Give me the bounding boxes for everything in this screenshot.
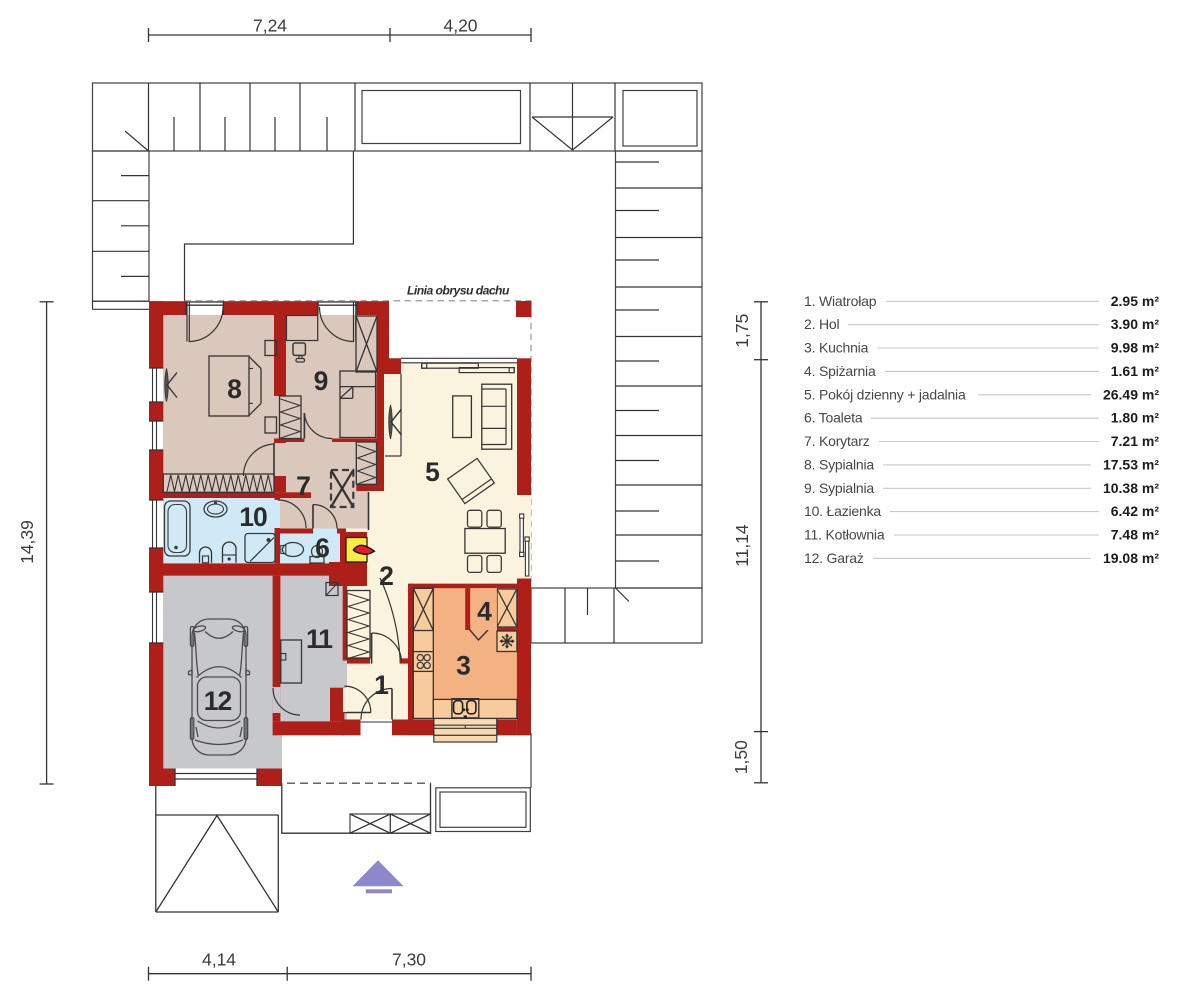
- svg-text:4. Spiżarnia: 4. Spiżarnia: [804, 363, 876, 379]
- svg-text:7.48 m²: 7.48 m²: [1111, 527, 1160, 543]
- svg-text:9: 9: [314, 366, 328, 396]
- svg-text:1: 1: [374, 670, 388, 700]
- svg-text:17.53 m²: 17.53 m²: [1103, 456, 1159, 472]
- svg-text:3. Kuchnia: 3. Kuchnia: [804, 340, 869, 356]
- svg-text:2. Hol: 2. Hol: [804, 316, 839, 332]
- svg-text:11. Kotłownia: 11. Kotłownia: [804, 527, 885, 543]
- svg-text:7. Korytarz: 7. Korytarz: [804, 433, 870, 449]
- svg-text:3.90 m²: 3.90 m²: [1111, 316, 1160, 332]
- svg-text:8: 8: [227, 374, 241, 404]
- svg-text:Linia obrysu dachu: Linia obrysu dachu: [407, 284, 510, 298]
- svg-text:9.98 m²: 9.98 m²: [1111, 340, 1160, 356]
- svg-text:14,39: 14,39: [17, 520, 37, 564]
- svg-text:7,24: 7,24: [253, 16, 287, 36]
- svg-text:10. Łazienka: 10. Łazienka: [804, 503, 881, 519]
- svg-text:1,50: 1,50: [731, 740, 751, 774]
- svg-text:9. Sypialnia: 9. Sypialnia: [804, 480, 874, 496]
- svg-text:2.95 m²: 2.95 m²: [1111, 293, 1160, 309]
- svg-text:4: 4: [477, 597, 492, 627]
- svg-text:10: 10: [239, 502, 267, 532]
- svg-text:19.08 m²: 19.08 m²: [1103, 550, 1159, 566]
- svg-text:12. Garaż: 12. Garaż: [804, 550, 864, 566]
- svg-text:8. Sypialnia: 8. Sypialnia: [804, 456, 874, 472]
- svg-text:6. Toaleta: 6. Toaleta: [804, 410, 863, 426]
- svg-text:6.42 m²: 6.42 m²: [1111, 503, 1160, 519]
- svg-text:7,30: 7,30: [392, 950, 426, 970]
- svg-text:7: 7: [296, 471, 310, 501]
- svg-text:1.80 m²: 1.80 m²: [1111, 410, 1160, 426]
- svg-text:11,14: 11,14: [732, 524, 752, 567]
- svg-text:5: 5: [425, 457, 439, 487]
- svg-text:3: 3: [456, 651, 470, 681]
- svg-text:5. Pokój dzienny + jadalnia: 5. Pokój dzienny + jadalnia: [804, 386, 966, 402]
- svg-text:1,75: 1,75: [732, 314, 752, 348]
- svg-text:26.49 m²: 26.49 m²: [1103, 386, 1159, 402]
- svg-text:4,20: 4,20: [443, 16, 477, 36]
- svg-text:6: 6: [315, 533, 329, 563]
- svg-text:1. Wiatrołap: 1. Wiatrołap: [804, 293, 877, 309]
- svg-text:10.38 m²: 10.38 m²: [1103, 480, 1159, 496]
- svg-text:7.21 m²: 7.21 m²: [1111, 433, 1160, 449]
- svg-text:1.61 m²: 1.61 m²: [1111, 363, 1160, 379]
- svg-text:11: 11: [306, 624, 332, 654]
- svg-text:2: 2: [379, 561, 393, 591]
- svg-text:12: 12: [204, 686, 232, 716]
- svg-text:4,14: 4,14: [202, 950, 236, 970]
